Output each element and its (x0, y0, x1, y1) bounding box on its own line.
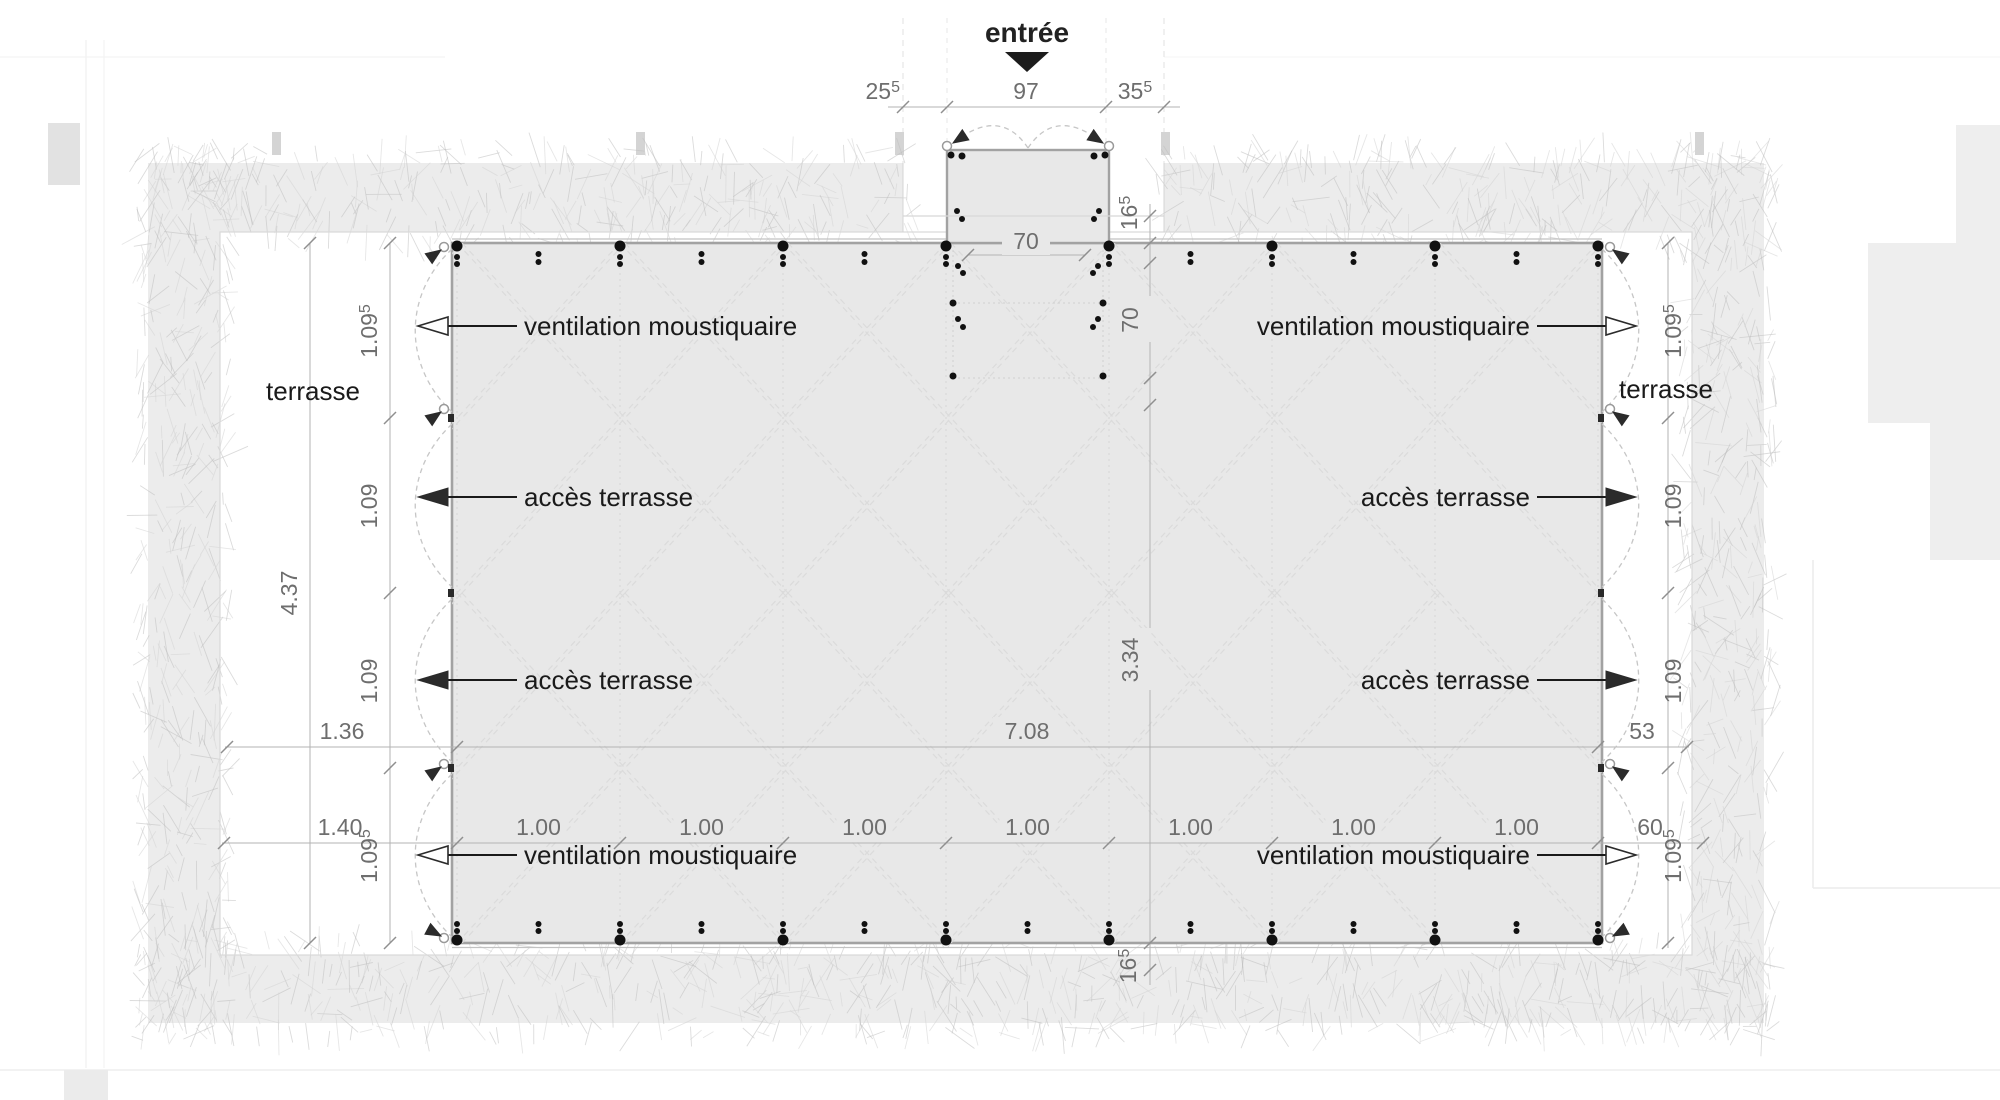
grass-stroke (144, 444, 145, 465)
post-dot (699, 251, 705, 257)
grass-stroke (907, 184, 908, 200)
grass-stroke (224, 323, 226, 342)
post-dot (615, 935, 626, 946)
arrowhead-icon (425, 924, 441, 936)
grass-stroke (867, 1031, 885, 1038)
context-block (64, 1070, 108, 1100)
callout-label: ventilation moustiquaire (524, 840, 797, 870)
grass-stroke (223, 776, 233, 796)
grass-stroke (1764, 770, 1777, 792)
grass-stroke (133, 973, 144, 986)
grass-stroke (1670, 299, 1694, 303)
grass-stroke (145, 697, 146, 725)
joint-marker (1598, 414, 1604, 422)
grass-stroke (223, 290, 234, 323)
grass-stroke (1768, 947, 1774, 959)
post-dot (862, 921, 868, 927)
bracing-line (1603, 593, 1929, 943)
grass-stroke (1638, 1028, 1644, 1044)
post-dot (943, 928, 949, 934)
grass-stroke (289, 1026, 293, 1042)
dim-text: 1.00 (1168, 814, 1213, 840)
post-dot (1104, 935, 1115, 946)
dim-text: 1.00 (1331, 814, 1376, 840)
grass-stroke (1397, 1024, 1421, 1044)
post-dot (1106, 254, 1112, 260)
grass-stroke (1768, 341, 1775, 359)
context-building (1868, 125, 2000, 560)
arrowhead-icon (425, 250, 441, 264)
solid-arrow-icon (418, 488, 448, 506)
floorplan-canvas: 2559735570165703.341651.367.08531.401.00… (0, 0, 2000, 1100)
post-dot (1095, 316, 1101, 322)
dim-text: 1.00 (679, 814, 724, 840)
grass-stroke (142, 904, 149, 920)
grass-stroke (1506, 143, 1520, 166)
grass-stroke (1765, 701, 1781, 725)
grass-stroke (1325, 156, 1326, 174)
grass-stroke (1764, 787, 1769, 803)
post-dot (1100, 373, 1107, 380)
post-dot (454, 254, 460, 260)
arrowhead-icon (1613, 767, 1629, 781)
post-dot (699, 259, 705, 265)
grass-stroke (169, 1033, 176, 1044)
post-dot (1102, 152, 1109, 159)
grass-stroke (749, 189, 750, 217)
post-dot (1593, 241, 1604, 252)
post-dot (954, 208, 960, 214)
grass-stroke (298, 940, 305, 952)
grass-stroke (1767, 629, 1769, 650)
post-dot (1595, 928, 1601, 934)
grass-stroke (609, 138, 621, 157)
grass-stroke (1219, 233, 1244, 242)
joint-marker (1598, 589, 1604, 597)
dim-text: 70 (1013, 228, 1039, 254)
grass-stroke (1766, 752, 1784, 783)
grass-stroke (726, 139, 738, 162)
grass-stroke (223, 684, 227, 696)
post-dot (452, 935, 463, 946)
grass-stroke (306, 1023, 310, 1050)
dim-text: 1.09 (356, 484, 382, 529)
grass-stroke (1444, 147, 1456, 164)
arrowhead-icon (953, 130, 969, 143)
grass-stroke (960, 1028, 973, 1037)
grass-stroke (1441, 944, 1444, 956)
hinge-circle-icon (1105, 142, 1114, 151)
post-dot (1595, 261, 1601, 267)
grass-stroke (137, 944, 139, 957)
open-arrow-icon (1606, 846, 1636, 864)
grass-stroke (141, 540, 148, 560)
dim-text: 355 (1118, 78, 1153, 104)
arrowhead-icon (1613, 250, 1629, 264)
post-dot (1351, 921, 1357, 927)
post-dot (950, 300, 957, 307)
grass-stroke (144, 308, 145, 337)
grass-stroke (1769, 361, 1776, 380)
grass-stroke (225, 504, 232, 522)
post-dot (1104, 241, 1115, 252)
grass-stroke (1110, 1028, 1124, 1042)
dim-text: 97 (1013, 78, 1039, 104)
grass-stroke (1680, 801, 1683, 815)
grass-stroke (694, 952, 718, 955)
grass-stroke (610, 985, 611, 998)
post-dot (1430, 241, 1441, 252)
grass-stroke (1683, 430, 1691, 456)
post-dot (617, 921, 623, 927)
joint-marker (448, 589, 454, 597)
joint-marker (1598, 764, 1604, 772)
arrowhead-icon (425, 767, 441, 781)
post-dot (1514, 259, 1520, 265)
post-dot (1432, 254, 1438, 260)
grass-stroke (1769, 419, 1771, 433)
dim-text: 1.36 (320, 718, 365, 744)
grass-stroke (398, 149, 420, 163)
grass-stroke (227, 948, 253, 955)
grass-stroke (1690, 687, 1691, 713)
grass-stroke (848, 139, 862, 165)
grass-stroke (1750, 830, 1751, 860)
grass-stroke (143, 793, 145, 810)
grass-stroke (288, 238, 299, 248)
grass-stroke (1065, 1027, 1099, 1029)
post-dot (1095, 263, 1101, 269)
grass-stroke (844, 145, 845, 163)
grass-stroke (133, 769, 143, 779)
grass-stroke (319, 936, 321, 958)
solid-arrow-icon (1606, 671, 1636, 689)
grass-stroke (999, 1033, 1020, 1040)
grass-stroke (226, 359, 230, 376)
grass-stroke (960, 958, 961, 984)
post-dot (780, 261, 786, 267)
grass-stroke (1773, 425, 1775, 462)
dim-text: 1.00 (842, 814, 887, 840)
post-dot (1430, 935, 1441, 946)
grass-stroke (1672, 554, 1694, 568)
fence-post (1695, 132, 1704, 155)
dim-text: 1.095 (1660, 304, 1686, 358)
post-dot (941, 241, 952, 252)
grass-stroke (1561, 1029, 1571, 1035)
grass-stroke (143, 606, 147, 635)
post-dot (615, 241, 626, 252)
post-dot (1432, 921, 1438, 927)
post-dot (1188, 259, 1194, 265)
grass-stroke (257, 1027, 260, 1047)
grass-stroke (1681, 914, 1686, 948)
grass-stroke (138, 681, 149, 714)
grass-stroke (222, 900, 236, 901)
post-dot (780, 921, 786, 927)
dim-text: 1.09 (356, 659, 382, 704)
post-dot (780, 928, 786, 934)
grass-stroke (1201, 954, 1202, 970)
grass-stroke (315, 146, 317, 162)
post-dot (955, 316, 961, 322)
grass-stroke (227, 237, 239, 256)
post-dot (943, 921, 949, 927)
dim-text: 165 (1116, 196, 1142, 231)
callout-label: accès terrasse (524, 482, 693, 512)
grass-stroke (1678, 729, 1686, 748)
post-dot (454, 928, 460, 934)
post-dot (1090, 324, 1096, 330)
dim-text: 255 (866, 78, 901, 104)
grass-stroke (223, 918, 231, 935)
post-dot (1269, 254, 1275, 260)
dim-text: 1.095 (1660, 829, 1686, 883)
post-dot (960, 270, 966, 276)
grass-stroke (424, 1026, 429, 1051)
grass-stroke (133, 881, 140, 904)
post-dot (955, 263, 961, 269)
grass-stroke (1183, 146, 1185, 159)
post-dot (536, 259, 542, 265)
grass-stroke (690, 1030, 701, 1040)
grass-stroke (1678, 577, 1693, 605)
arrowhead-icon (1613, 412, 1629, 426)
grass-stroke (1278, 1030, 1289, 1047)
hinge-circle-icon (1606, 934, 1615, 943)
grass-stroke (1356, 134, 1368, 165)
arrowhead-icon (1087, 130, 1103, 143)
fence-post (636, 132, 645, 155)
post-dot (778, 241, 789, 252)
post-dot (536, 928, 542, 934)
grass-stroke (135, 143, 160, 162)
grass-stroke (874, 197, 906, 198)
post-dot (1595, 254, 1601, 260)
grass-stroke (440, 145, 461, 165)
floorplan-drawing: 2559735570165703.341651.367.08531.401.00… (0, 0, 2000, 1100)
grass-stroke (461, 139, 466, 155)
grass-stroke (529, 133, 540, 168)
grass-stroke (133, 250, 149, 283)
post-dot (780, 254, 786, 260)
grass-stroke (1771, 685, 1781, 716)
arrowhead-icon (425, 412, 441, 426)
callout-label: ventilation moustiquaire (1257, 311, 1530, 341)
post-dot (1351, 251, 1357, 257)
grass-stroke (1657, 933, 1659, 949)
open-arrow-icon (1606, 317, 1636, 335)
dim-text: 7.08 (1005, 718, 1050, 744)
grass-stroke (142, 390, 143, 417)
callout-label: accès terrasse (524, 665, 693, 695)
dim-text: 1.095 (356, 829, 382, 883)
grass-stroke (1680, 406, 1689, 435)
dim-text: 1.00 (1005, 814, 1050, 840)
grass-stroke (1767, 218, 1782, 251)
dim-text: 1.095 (356, 304, 382, 358)
solid-arrow-icon (1606, 488, 1636, 506)
grass-stroke (142, 415, 143, 429)
grass-stroke (1768, 661, 1781, 689)
grass-stroke (132, 907, 144, 940)
dim-text: 4.37 (276, 571, 302, 616)
grass-stroke (134, 889, 143, 912)
dim-text: 60 (1637, 814, 1663, 840)
dim-text: 1.00 (516, 814, 561, 840)
grass-stroke (223, 493, 224, 505)
grass-stroke (265, 931, 270, 949)
grass-stroke (692, 136, 695, 162)
grass-stroke (620, 1022, 640, 1051)
post-dot (617, 261, 623, 267)
post-dot (452, 241, 463, 252)
grass-stroke (1730, 1028, 1739, 1046)
post-dot (948, 152, 955, 159)
dim-text: 1.09 (1660, 484, 1686, 529)
post-dot (1188, 921, 1194, 927)
post-dot (699, 921, 705, 927)
grass-stroke (1201, 1020, 1208, 1043)
callout-label: accès terrasse (1361, 482, 1530, 512)
post-dot (1432, 928, 1438, 934)
grass-stroke (328, 1031, 330, 1047)
grass-stroke (253, 147, 267, 155)
grass-stroke (1681, 628, 1693, 661)
grass-stroke (227, 271, 230, 285)
grass-stroke (174, 146, 192, 155)
dim-text: 1.40 (318, 814, 363, 840)
grass-stroke (1768, 973, 1770, 989)
post-dot (1025, 928, 1031, 934)
post-dot (862, 259, 868, 265)
grass-stroke (183, 163, 184, 179)
grass-stroke (137, 349, 138, 376)
grass-stroke (1485, 1022, 1493, 1038)
grass-stroke (143, 382, 144, 402)
grass-stroke (496, 1027, 498, 1043)
grass-stroke (225, 523, 233, 550)
grass-stroke (178, 145, 179, 165)
grass-stroke (763, 148, 785, 162)
post-dot (862, 928, 868, 934)
grass-stroke (132, 1036, 143, 1040)
grass-stroke (1072, 1027, 1076, 1047)
dim-text: 3.34 (1117, 637, 1143, 682)
post-dot (862, 251, 868, 257)
dim-text: 1.09 (1660, 659, 1686, 704)
post-dot (617, 928, 623, 934)
open-arrow-icon (418, 317, 448, 335)
grass-stroke (703, 1032, 713, 1038)
grass-stroke (1421, 1029, 1457, 1042)
post-dot (943, 254, 949, 260)
post-dot (1514, 251, 1520, 257)
grass-stroke (138, 776, 143, 802)
grass-stroke (130, 149, 144, 172)
grass-stroke (478, 153, 499, 158)
post-dot (1100, 300, 1107, 307)
entree-label: entrée (985, 17, 1069, 48)
callout-label: ventilation moustiquaire (524, 311, 797, 341)
grass-stroke (1767, 286, 1771, 320)
grass-stroke (412, 931, 413, 955)
grass-stroke (131, 554, 142, 574)
grass-stroke (792, 137, 793, 162)
post-dot (1267, 935, 1278, 946)
grass-stroke (721, 164, 744, 165)
post-dot (536, 251, 542, 257)
post-dot (1432, 261, 1438, 267)
joint-marker (448, 764, 454, 772)
post-dot (1188, 251, 1194, 257)
grass-stroke (221, 657, 237, 685)
grass-stroke (226, 590, 231, 621)
grass-stroke (1639, 938, 1642, 954)
grass-stroke (1681, 712, 1682, 729)
grass-stroke (1039, 1022, 1043, 1045)
post-dot (699, 928, 705, 934)
grass-stroke (350, 1026, 352, 1040)
post-dot (941, 935, 952, 946)
terrasse-label-left: terrasse (266, 376, 360, 406)
grass-stroke (133, 693, 140, 709)
post-dot (1188, 928, 1194, 934)
grass-stroke (1603, 133, 1605, 163)
open-arrow-icon (418, 846, 448, 864)
grass-stroke (1481, 973, 1482, 992)
grass-stroke (865, 147, 893, 153)
post-dot (454, 261, 460, 267)
grass-stroke (758, 1032, 770, 1036)
grass-stroke (945, 1027, 974, 1048)
dim-text: 1.00 (1494, 814, 1539, 840)
grass-stroke (1690, 1008, 1709, 1009)
post-dot (1106, 928, 1112, 934)
grass-stroke (434, 232, 442, 244)
grass-stroke (1767, 783, 1768, 795)
grass-stroke (585, 1022, 591, 1045)
grass-stroke (956, 997, 957, 1009)
grass-stroke (143, 756, 148, 771)
arrowhead-icon (1613, 924, 1629, 936)
grass-stroke (438, 146, 442, 162)
post-dot (1269, 921, 1275, 927)
grass-stroke (185, 1009, 186, 1027)
grass-stroke (1768, 995, 1776, 1026)
callout-label: ventilation moustiquaire (1257, 840, 1530, 870)
grass-stroke (691, 1027, 692, 1047)
grass-stroke (1771, 566, 1778, 600)
context-block (48, 123, 80, 185)
grass-stroke (1096, 1029, 1103, 1047)
post-dot (960, 324, 966, 330)
grass-stroke (860, 1024, 873, 1039)
grass-stroke (360, 1029, 372, 1032)
grass-stroke (1412, 139, 1421, 159)
grass-stroke (410, 233, 424, 261)
callout-label: accès terrasse (1361, 665, 1530, 695)
grass-stroke (130, 1001, 167, 1002)
grass-stroke (223, 936, 225, 955)
entree-arrow-icon (1005, 52, 1049, 72)
grass-stroke (338, 933, 339, 947)
grass-stroke (1672, 454, 1691, 479)
post-dot (778, 935, 789, 946)
grass-stroke (1763, 964, 1785, 969)
grass-stroke (1253, 150, 1269, 162)
post-dot (950, 373, 957, 380)
